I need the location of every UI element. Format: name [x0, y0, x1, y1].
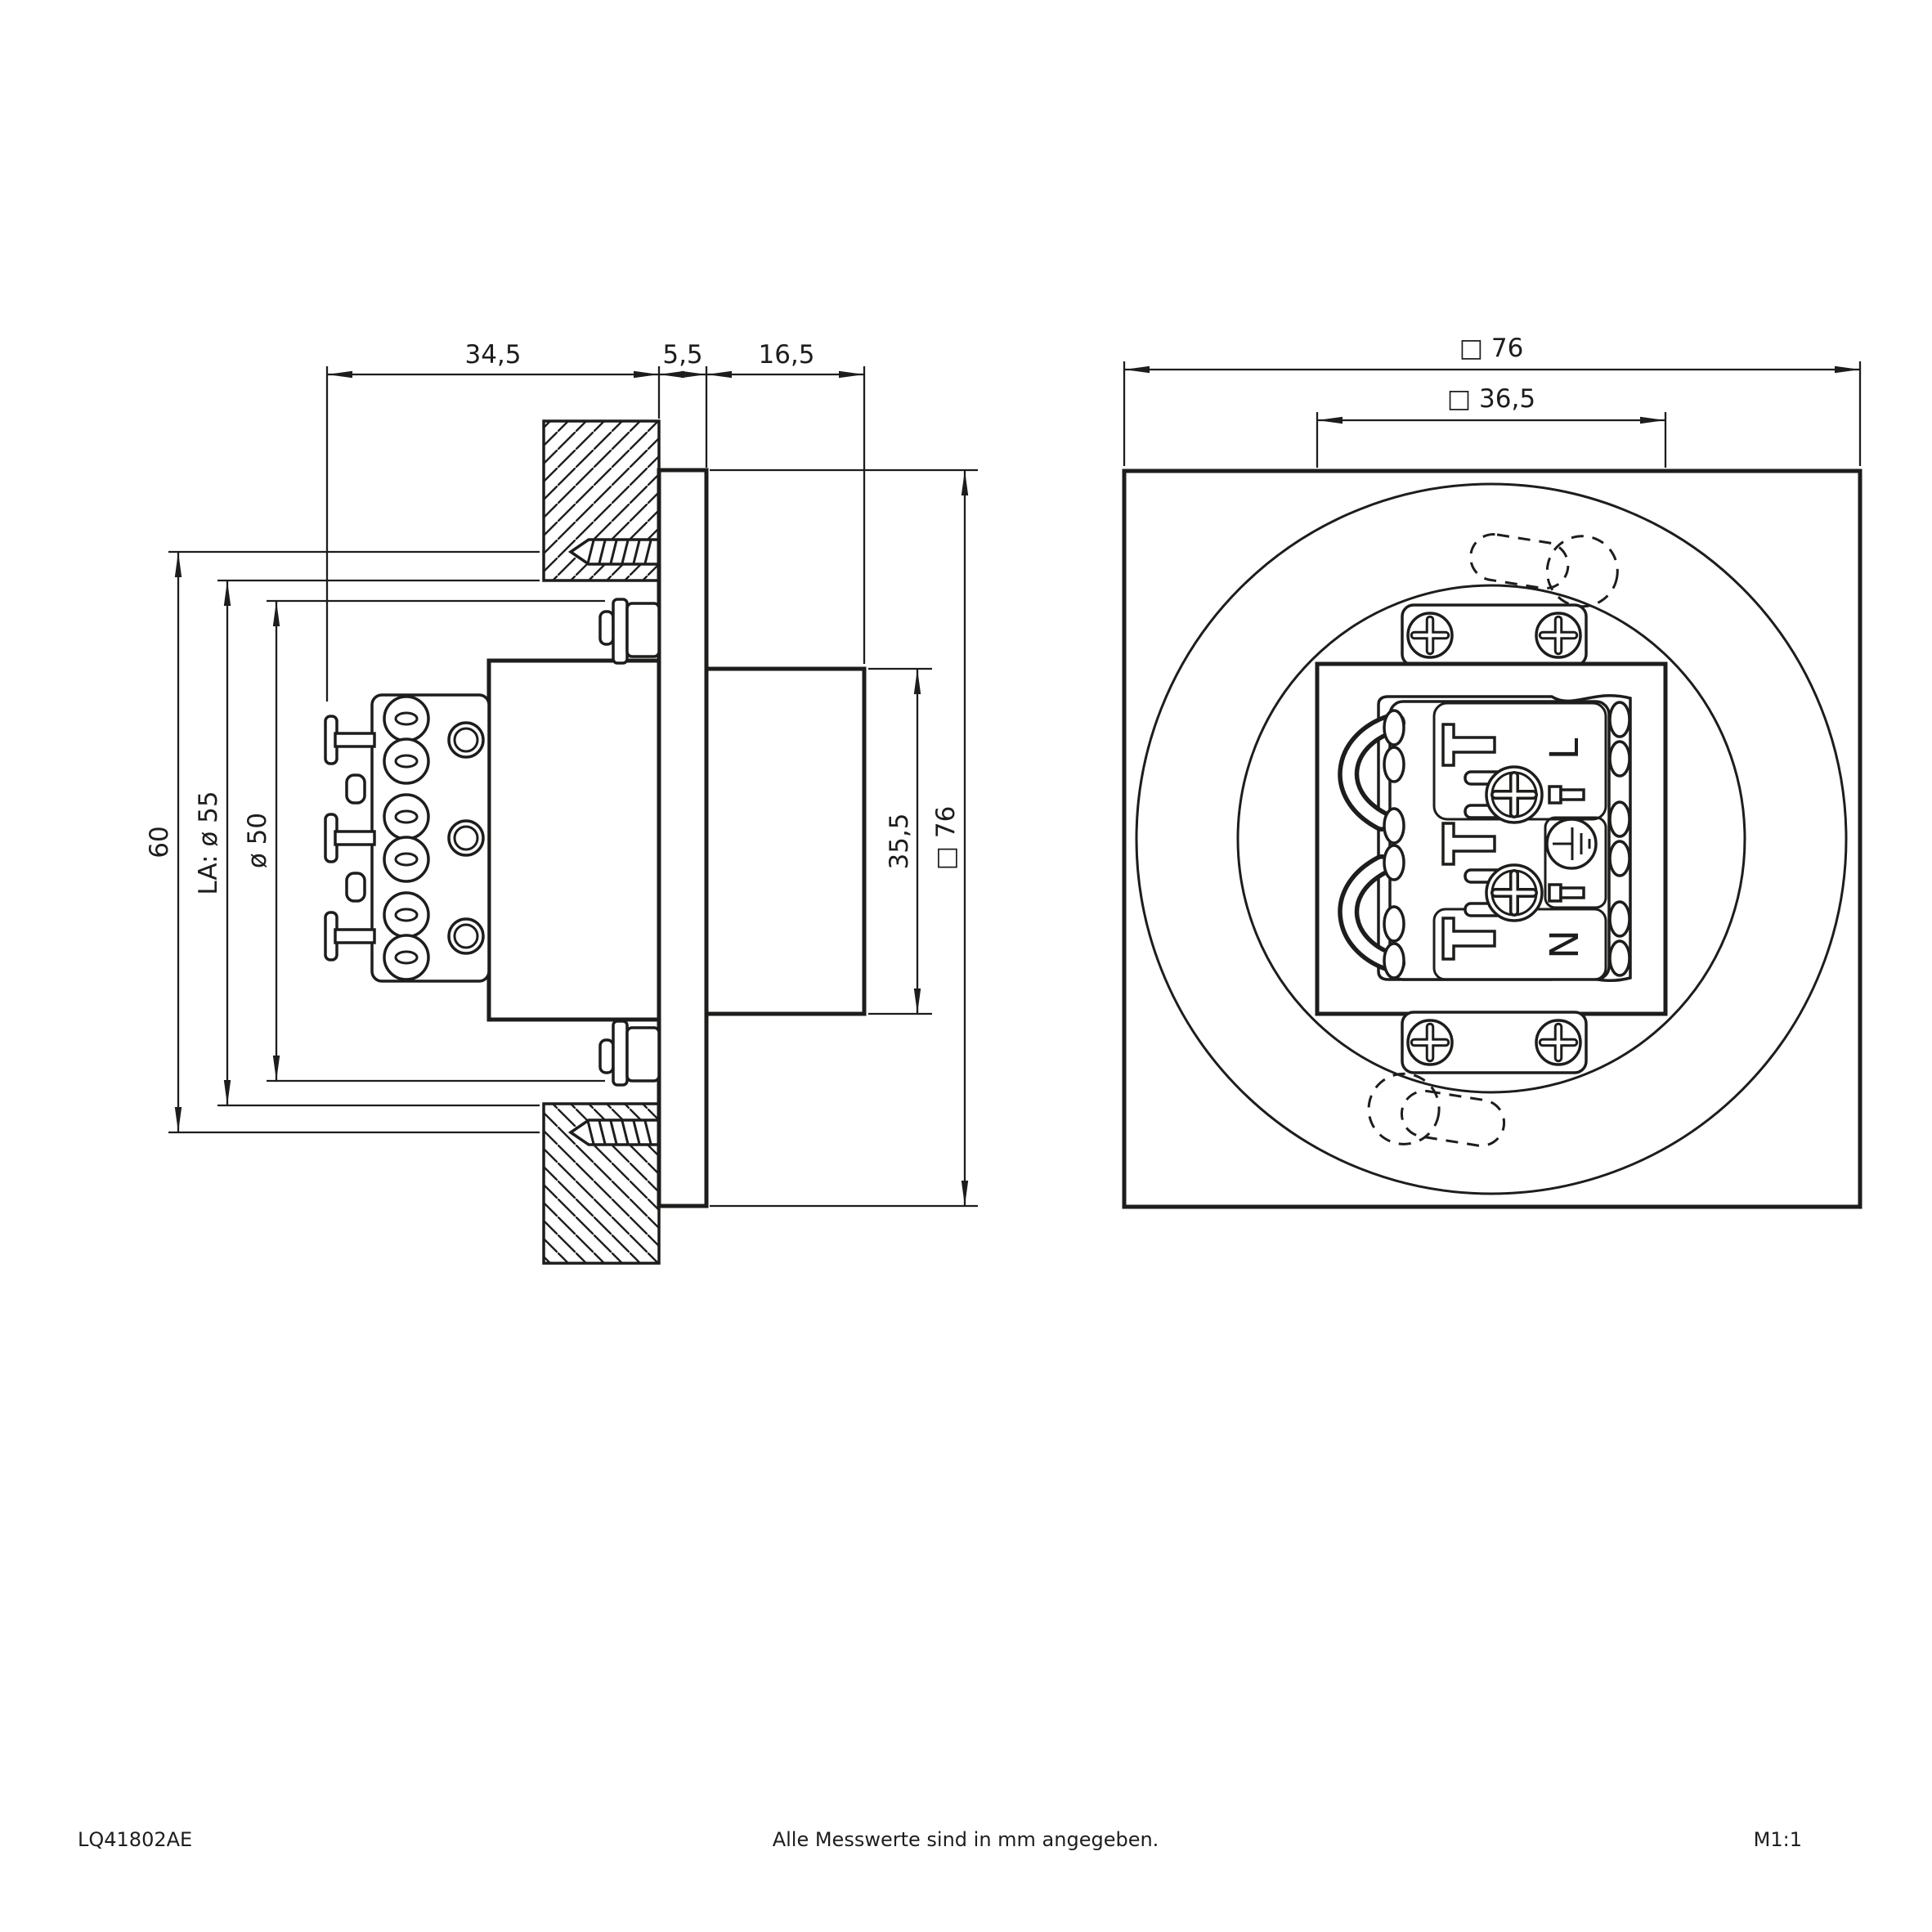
- terminal-label-live: L: [1542, 737, 1588, 760]
- dim-label-gear-box-size: □ 36,5: [1447, 384, 1535, 414]
- push-wire-connector: L N: [1348, 696, 1630, 981]
- dim-label-bezel-size-front: □ 76: [1459, 334, 1524, 363]
- title-block: LQ41802AE Alle Messwerte sind in mm ange…: [78, 1828, 1802, 1851]
- dim-label-front-body-height: 35,5: [885, 813, 914, 869]
- drawing-scale: M1:1: [1754, 1828, 1802, 1851]
- article-number: LQ41802AE: [78, 1828, 192, 1851]
- earth-symbol: [1547, 819, 1596, 868]
- dim-label-protrusion-depth: 16,5: [758, 340, 814, 370]
- technical-drawing-page: 34,5 5,5 16,5 60 LA: ø 55 ø 50 35,5 □ 76: [0, 0, 1932, 1932]
- front-view: L N □ 76 □ 36,5: [1124, 334, 1860, 1207]
- mounting-bracket-top: [1402, 605, 1586, 666]
- units-note: Alle Messwerte sind in mm angegeben.: [773, 1828, 1159, 1851]
- connector-tab: [347, 775, 365, 803]
- dim-label-bezel-thickness: 5,5: [662, 340, 702, 370]
- dim-label-bezel-size-side: □ 76: [931, 806, 961, 871]
- dim-front-top: □ 76 □ 36,5: [1124, 334, 1860, 468]
- dim-label-body-diameter: ø 50: [243, 813, 272, 868]
- dimension-drawing: 34,5 5,5 16,5 60 LA: ø 55 ø 50 35,5 □ 76: [0, 0, 1932, 1932]
- dim-label-cutout-diameter: LA: ø 55: [194, 791, 223, 894]
- connector-tab: [347, 873, 365, 901]
- terminal-block: [325, 695, 489, 981]
- terminal-label-neutral: N: [1542, 930, 1588, 959]
- bezel-plate-edge: [659, 470, 706, 1206]
- dim-label-depth-behind-wall: 34,5: [464, 340, 521, 370]
- recessed-housing: [489, 661, 659, 1020]
- clamp-top: [600, 599, 659, 663]
- dim-label-fixing-span: 60: [145, 826, 174, 858]
- side-view: 34,5 5,5 16,5 60 LA: ø 55 ø 50 35,5 □ 76: [145, 340, 978, 1263]
- front-body: [706, 669, 864, 1014]
- clamp-bottom: [600, 1021, 659, 1085]
- mounting-bracket-bottom: [1402, 1012, 1586, 1073]
